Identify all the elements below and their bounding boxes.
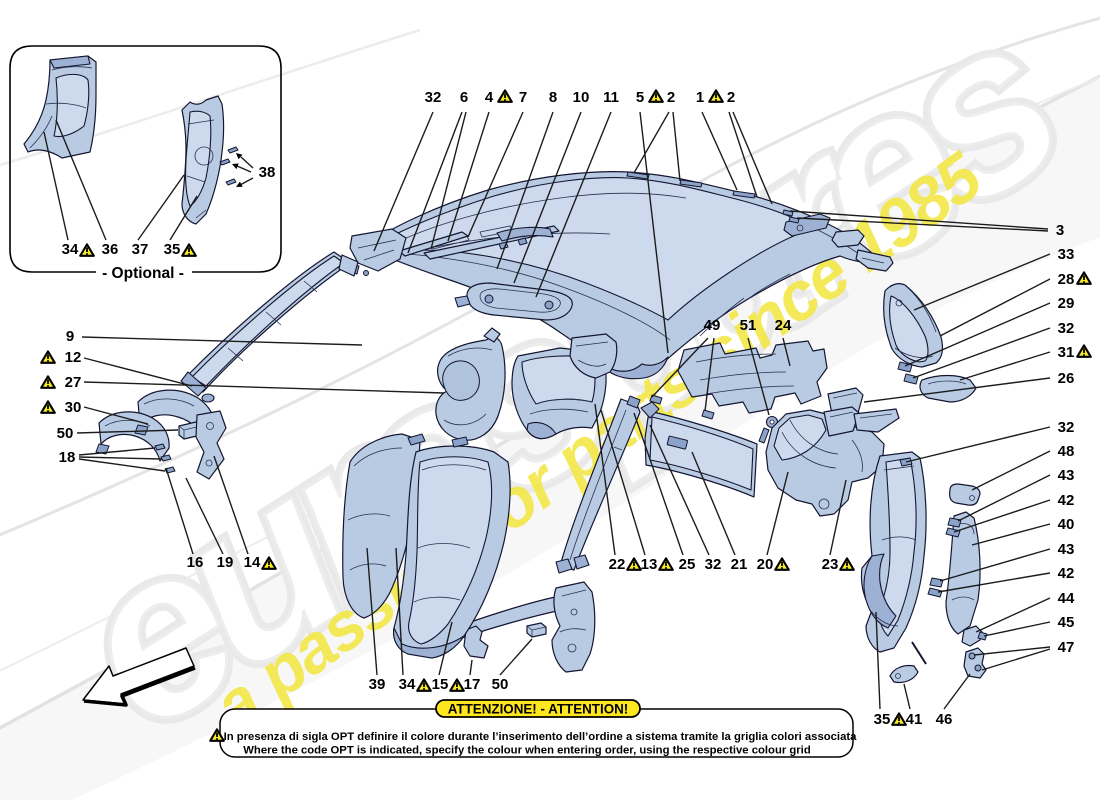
svg-text:47: 47 [1058, 639, 1075, 656]
svg-text:2: 2 [667, 89, 675, 106]
svg-text:28: 28 [1058, 271, 1075, 288]
svg-text:24: 24 [775, 317, 792, 334]
svg-text:20: 20 [757, 556, 774, 573]
svg-text:35: 35 [874, 711, 891, 728]
svg-text:6: 6 [460, 89, 468, 106]
svg-text:8: 8 [549, 89, 557, 106]
svg-text:42: 42 [1058, 565, 1075, 582]
svg-text:51: 51 [740, 317, 757, 334]
svg-text:50: 50 [492, 676, 509, 693]
svg-text:43: 43 [1058, 467, 1075, 484]
svg-text:32: 32 [425, 89, 442, 106]
svg-text:39: 39 [369, 676, 386, 693]
svg-text:ATTENZIONE! - ATTENTION!: ATTENZIONE! - ATTENTION! [448, 702, 629, 717]
svg-text:25: 25 [679, 556, 696, 573]
svg-text:42: 42 [1058, 492, 1075, 509]
svg-text:13: 13 [641, 556, 658, 573]
svg-text:18: 18 [59, 449, 76, 466]
svg-text:34: 34 [62, 241, 79, 258]
svg-text:23: 23 [822, 556, 839, 573]
svg-text:14: 14 [244, 554, 261, 571]
svg-text:16: 16 [187, 554, 204, 571]
svg-text:Where the code OPT is indicate: Where the code OPT is indicated, specify… [243, 745, 811, 757]
svg-text:5: 5 [636, 89, 644, 106]
svg-text:7: 7 [519, 89, 527, 106]
svg-text:29: 29 [1058, 295, 1075, 312]
svg-text:32: 32 [1058, 320, 1075, 337]
svg-text:49: 49 [704, 317, 721, 334]
svg-text:48: 48 [1058, 443, 1075, 460]
svg-text:38: 38 [259, 164, 276, 181]
svg-text:32: 32 [705, 556, 722, 573]
svg-text:9: 9 [66, 328, 74, 345]
svg-text:1: 1 [696, 89, 704, 106]
svg-text:30: 30 [65, 399, 82, 416]
svg-text:- Optional -: - Optional - [102, 265, 184, 282]
svg-text:45: 45 [1058, 614, 1075, 631]
svg-text:27: 27 [65, 374, 82, 391]
svg-text:44: 44 [1058, 590, 1075, 607]
svg-text:26: 26 [1058, 370, 1075, 387]
svg-text:15: 15 [432, 676, 449, 693]
svg-text:4: 4 [485, 89, 494, 106]
svg-text:31: 31 [1058, 344, 1075, 361]
svg-text:50: 50 [57, 425, 74, 442]
svg-text:10: 10 [573, 89, 590, 106]
svg-text:In presenza di sigla OPT defin: In presenza di sigla OPT definire il col… [224, 731, 858, 743]
svg-text:36: 36 [102, 241, 119, 258]
svg-text:32: 32 [1058, 419, 1075, 436]
svg-text:21: 21 [731, 556, 748, 573]
svg-text:3: 3 [1056, 222, 1064, 239]
svg-text:35: 35 [164, 241, 181, 258]
svg-text:11: 11 [603, 89, 619, 106]
svg-text:37: 37 [132, 241, 149, 258]
svg-text:22: 22 [609, 556, 626, 573]
svg-text:40: 40 [1058, 516, 1075, 533]
svg-text:43: 43 [1058, 541, 1075, 558]
svg-text:34: 34 [399, 676, 416, 693]
svg-text:33: 33 [1058, 246, 1075, 263]
svg-text:19: 19 [217, 554, 234, 571]
svg-text:46: 46 [936, 711, 953, 728]
svg-text:41: 41 [906, 711, 923, 728]
svg-text:17: 17 [464, 676, 481, 693]
svg-text:12: 12 [65, 349, 82, 366]
svg-text:2: 2 [727, 89, 735, 106]
